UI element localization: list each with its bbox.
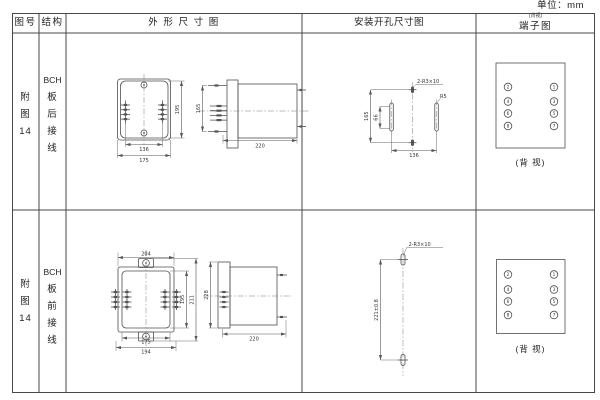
view-caption: (背 视) (515, 158, 545, 168)
terminal-number: 6 (507, 299, 510, 305)
front-view: 204 195 211 175 194 (111, 250, 198, 356)
terminal-number: 3 (553, 287, 556, 293)
holes-callout-label: 2-R3×10 (417, 79, 439, 85)
radius-callout-label: R5 (440, 94, 447, 100)
view-caption: (背 视) (515, 344, 545, 354)
terminal-number: 8 (507, 313, 510, 319)
dim-label: 195 (175, 105, 181, 115)
dim-label: 195 (180, 295, 186, 305)
dim-label: 211 (190, 295, 196, 305)
dim-label: 136 (139, 147, 149, 153)
holes-callout-label: 2-R3×10 (409, 242, 431, 248)
dim-label: 221±0.8 (374, 299, 380, 321)
dim-label: 165 (364, 111, 370, 121)
table-grid (12, 14, 595, 393)
dim-label: 220 (255, 144, 265, 150)
terminal-number: 5 (553, 299, 556, 305)
dim-label: 204 (141, 251, 151, 257)
terminal-number: 1 (553, 85, 556, 91)
datasheet-page: 单位：mm 图号 结构 外 形 尺 寸 图 安装开孔尺寸图 (背视) 端子图 附… (0, 0, 600, 400)
terminal-diagram-rear-wiring: 2 4 6 8 1 3 5 7 (背 视) (496, 63, 565, 168)
terminal-diagram-front-wiring: 2 4 6 8 1 3 5 7 (背 视) (497, 260, 566, 355)
side-view: 165 220 (196, 80, 309, 150)
mounting-drawing-front-wiring: 2-R3×10 221±0.8 (374, 242, 443, 376)
dim-label: 165 (196, 104, 202, 114)
outline-drawing-rear-wiring: 195 136 175 (118, 74, 310, 164)
dim-label: 175 (141, 340, 151, 346)
terminal-number: 3 (553, 99, 556, 105)
terminal-number: 1 (553, 272, 556, 278)
front-view: 195 136 175 (118, 74, 185, 164)
side-view: 228 220 (203, 262, 292, 343)
mounting-drawing-rear-wiring: 2-R3×10 R5 165 66 136 (364, 79, 447, 159)
terminal-pins (208, 84, 306, 132)
dim-label: 175 (139, 158, 149, 164)
dim-label: 136 (409, 153, 419, 159)
terminal-number: 4 (507, 99, 510, 105)
dim-label: 228 (204, 290, 210, 300)
terminal-number: 4 (507, 287, 510, 293)
outline-drawing-front-wiring: 204 195 211 175 194 228 (111, 250, 292, 356)
terminal-number: 8 (507, 124, 510, 130)
dim-label: 220 (249, 337, 259, 343)
terminal-number: 2 (507, 85, 510, 91)
terminal-number: 7 (553, 124, 556, 130)
terminal-number: 6 (507, 111, 510, 117)
terminal-number: 2 (507, 272, 510, 278)
drawing-canvas: 195 136 175 (0, 0, 600, 400)
terminal-number: 7 (553, 313, 556, 319)
dim-label: 66 (374, 114, 380, 120)
terminal-number: 5 (553, 111, 556, 117)
dim-label: 194 (141, 350, 151, 356)
